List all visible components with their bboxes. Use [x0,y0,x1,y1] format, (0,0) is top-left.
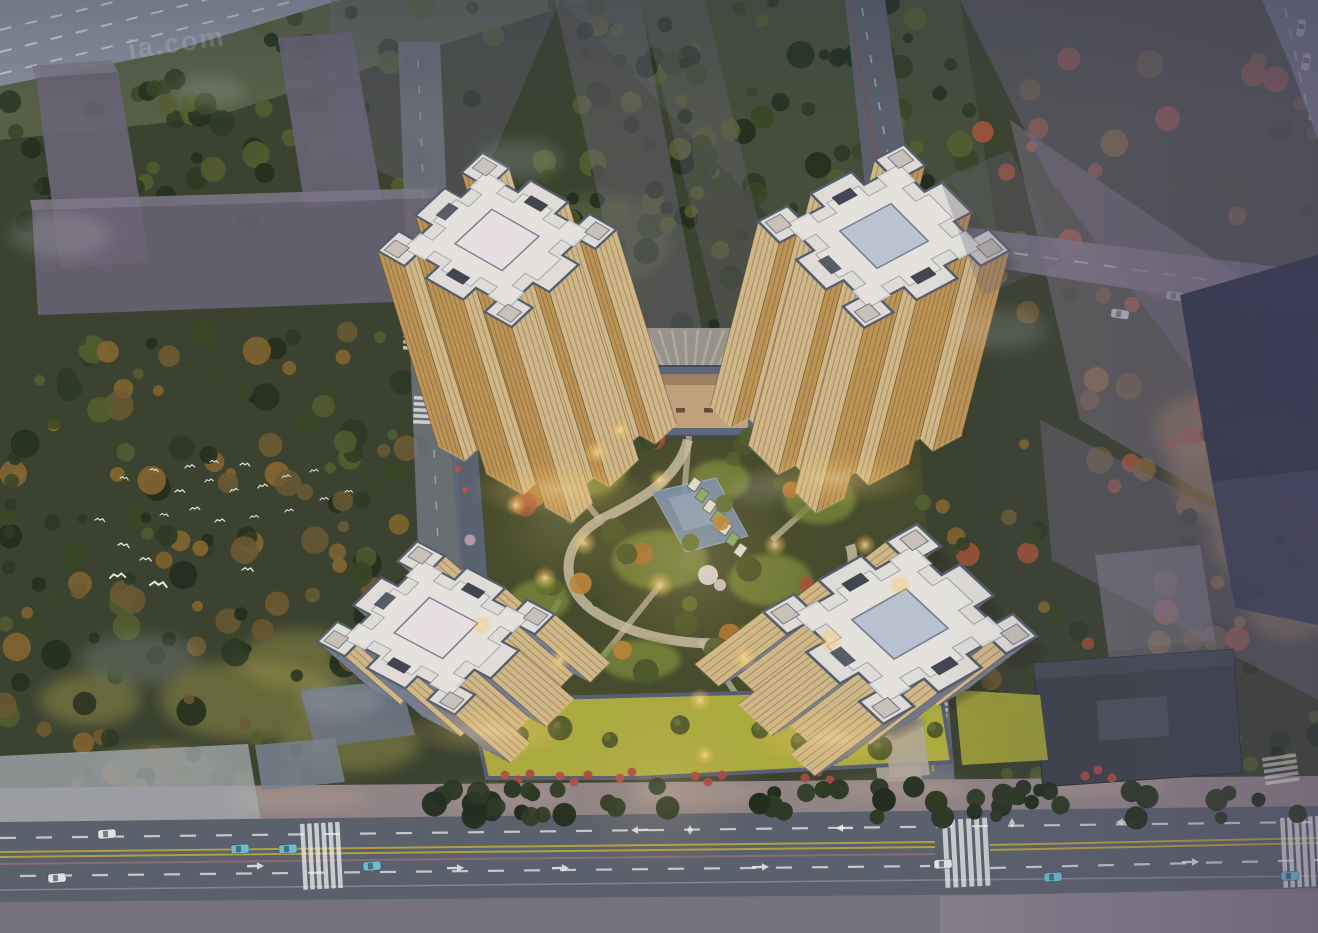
scene-layers [0,0,1318,933]
aerial-rendering: ia.com [0,0,1318,933]
atmosphere [0,0,1318,933]
rendering-canvas [0,0,1318,933]
